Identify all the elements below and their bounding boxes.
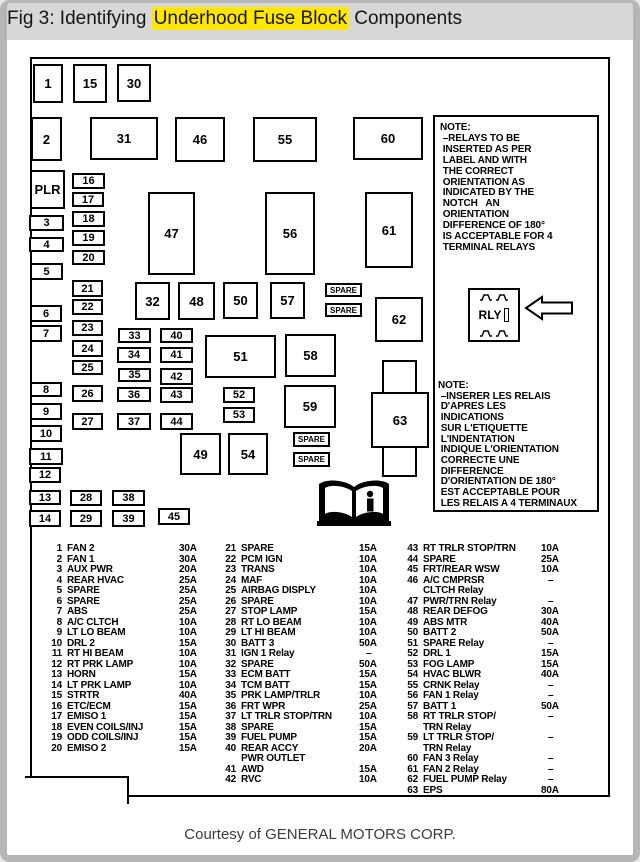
legend-row: 9LT LO BEAM10A — [48, 628, 216, 639]
relay-notch-icon — [496, 293, 508, 301]
fuse-box-16: 16 — [72, 173, 105, 189]
legend-fuse-name: HVAC BLWR — [423, 670, 541, 681]
legend-fuse-name: REAR ACCY PWR OUTLET — [241, 744, 359, 765]
legend-fuse-amp: 20A — [359, 744, 377, 755]
legend-fuse-amp: 10A — [179, 628, 197, 639]
legend-fuse-number: 39 — [222, 733, 236, 744]
legend-fuse-number: 46 — [404, 576, 418, 587]
legend-fuse-amp: 15A — [541, 649, 559, 660]
legend-fuse-name: RT HI BEAM — [67, 649, 179, 660]
legend-fuse-amp: 40A — [541, 670, 559, 681]
fuse-box-38: 38 — [112, 490, 145, 506]
fuse-box-61: 61 — [365, 192, 413, 268]
fuse-block-diagram: 11530231465560PLR16171819203454756612122… — [0, 0, 640, 862]
legend-fuse-name: RVC — [241, 775, 359, 786]
fuse-box-17: 17 — [72, 192, 104, 207]
legend-fuse-number: 45 — [404, 565, 418, 576]
legend-fuse-name: STRTR — [67, 691, 179, 702]
relay-notch-icons-bottom — [480, 329, 508, 337]
legend-fuse-name: EPS — [423, 786, 541, 797]
legend-fuse-number: 56 — [404, 691, 418, 702]
legend-fuse-name: LT HI BEAM — [241, 628, 359, 639]
legend-fuse-amp: 25A — [179, 586, 197, 597]
legend-row: 43RT TRLR STOP/TRN10A — [404, 544, 586, 555]
legend-fuse-amp: 80A — [541, 786, 559, 797]
legend-fuse-name: FAN 3 Relay — [423, 754, 541, 765]
legend-fuse-name: A/C CMPRSR CLTCH Relay — [423, 576, 541, 597]
fuse-box-27: 27 — [72, 413, 103, 430]
fuse-box-50: 50 — [223, 282, 258, 319]
fuse-box-1: 1 — [33, 64, 63, 103]
fuse-box-28: 28 — [70, 490, 102, 506]
legend-fuse-amp: – — [359, 649, 371, 660]
legend-fuse-amp: 10A — [359, 586, 377, 597]
fuse-box-12: 12 — [29, 467, 61, 483]
legend-fuse-amp: 15A — [359, 670, 377, 681]
legend-fuse-name: EMISO 1 — [67, 712, 179, 723]
relay-label-row: RLY — [479, 308, 510, 322]
fuse-box-14: 14 — [29, 510, 61, 527]
legend-fuse-number: 50 — [404, 628, 418, 639]
legend-row: 35PRK LAMP/TRLR10A — [222, 691, 400, 702]
legend-fuse-number: 20 — [48, 744, 62, 755]
legend-fuse-name: STOP LAMP — [241, 607, 359, 618]
legend-fuse-amp: 15A — [179, 733, 197, 744]
legend-fuse-amp: 15A — [359, 544, 377, 555]
fuse-box-51: 51 — [205, 335, 276, 378]
legend-fuse-name: RT TRLR STOP/ TRN Relay — [423, 712, 541, 733]
legend-fuse-number: 60 — [404, 754, 418, 765]
fuse-box-29: 29 — [70, 510, 102, 527]
legend-row: 45FRT/REAR WSW10A — [404, 565, 586, 576]
legend-row: 11RT HI BEAM10A — [48, 649, 216, 660]
legend-fuse-number: 54 — [404, 670, 418, 681]
legend-fuse-name: LT TRLR STOP/ TRN Relay — [423, 733, 541, 754]
relay-notch-icon — [480, 329, 492, 337]
legend-fuse-amp: 30A — [179, 544, 197, 555]
fuse-box-3: 3 — [29, 215, 64, 231]
legend-row: 48REAR DEFOG30A — [404, 607, 586, 618]
legend-fuse-name: ECM BATT — [241, 670, 359, 681]
fuse-box-63: 63 — [371, 392, 429, 448]
legend-fuse-amp: 10A — [359, 712, 377, 723]
fuse-box-30: 30 — [117, 64, 151, 102]
legend-row: 19ODD COILS/INJ15A — [48, 733, 216, 744]
legend-fuse-name: ODD COILS/INJ — [67, 733, 179, 744]
fuse-box-26: 26 — [72, 385, 103, 402]
legend-column-1: 1FAN 230A2FAN 130A3AUX PWR20A4REAR HVAC2… — [48, 544, 216, 754]
fuse-box-60: 60 — [353, 117, 423, 160]
fuse-box-45: 45 — [158, 508, 190, 525]
legend-row: 13HORN15A — [48, 670, 216, 681]
fuse-box-25: 25 — [72, 360, 103, 375]
legend-row: 17EMISO 115A — [48, 712, 216, 723]
fuse-box-5: 5 — [30, 263, 63, 280]
fuse-box-24: 24 — [72, 340, 103, 357]
legend-fuse-amp: – — [541, 754, 553, 765]
fuse-box-54: 54 — [228, 433, 268, 475]
relay-note-english: NOTE: –RELAYS TO BE INSERTED AS PER LABE… — [440, 123, 595, 254]
fuse-box-10: 10 — [30, 425, 62, 442]
fuse-box-39: 39 — [112, 510, 145, 527]
legend-fuse-number: 23 — [222, 565, 236, 576]
legend-row: 60FAN 3 Relay– — [404, 754, 586, 765]
legend-row: 20EMISO 215A — [48, 744, 216, 755]
legend-fuse-number: 42 — [222, 775, 236, 786]
legend-fuse-number: 43 — [404, 544, 418, 555]
legend-row: 31IGN 1 Relay– — [222, 649, 400, 660]
fuse-box-34: 34 — [117, 347, 151, 363]
legend-fuse-name: DRL 1 — [423, 649, 541, 660]
legend-fuse-name: FUEL PUMP — [241, 733, 359, 744]
legend-fuse-amp: 50A — [541, 628, 559, 639]
fuse-box-37: 37 — [117, 413, 151, 430]
spare-fuse-box: SPARE — [293, 432, 330, 447]
fuse-box-43: 43 — [160, 387, 193, 403]
legend-fuse-number: 27 — [222, 607, 236, 618]
legend-row: 23TRANS10A — [222, 565, 400, 576]
legend-fuse-name: BATT 2 — [423, 628, 541, 639]
legend-fuse-number: 59 — [404, 733, 418, 744]
legend-row: 21SPARE15A — [222, 544, 400, 555]
legend-fuse-name: IGN 1 Relay — [241, 649, 359, 660]
legend-fuse-number: 48 — [404, 607, 418, 618]
relay-orientation-symbol: RLY — [468, 288, 520, 342]
relay-slot-icon — [504, 308, 509, 322]
legend-fuse-amp: 25A — [179, 607, 197, 618]
legend-fuse-name: RT TRLR STOP/TRN — [423, 544, 541, 555]
legend-fuse-number: 62 — [404, 775, 418, 786]
legend-row: 33ECM BATT15A — [222, 670, 400, 681]
legend-row: 39FUEL PUMP15A — [222, 733, 400, 744]
legend-fuse-number: 11 — [48, 649, 62, 660]
legend-fuse-number: 21 — [222, 544, 236, 555]
legend-fuse-amp: 15A — [179, 712, 197, 723]
fuse-box-31: 31 — [90, 117, 158, 160]
legend-fuse-number: 19 — [48, 733, 62, 744]
legend-fuse-amp: – — [541, 733, 553, 744]
legend-fuse-number: 31 — [222, 649, 236, 660]
legend-row: 3AUX PWR20A — [48, 565, 216, 576]
legend-fuse-name: ABS — [67, 607, 179, 618]
legend-fuse-number: 5 — [48, 586, 62, 597]
legend-fuse-name: FRT/REAR WSW — [423, 565, 541, 576]
legend-fuse-number: 17 — [48, 712, 62, 723]
legend-row: 27STOP LAMP15A — [222, 607, 400, 618]
fuse-box-40: 40 — [160, 328, 193, 343]
relay-label: RLY — [479, 308, 502, 322]
fuse-box-13: 13 — [29, 490, 61, 505]
fuse-box-6: 6 — [30, 305, 62, 322]
legend-fuse-name: PRK LAMP/TRLR — [241, 691, 359, 702]
legend-fuse-amp: 10A — [359, 775, 377, 786]
legend-fuse-name: SPARE — [67, 586, 179, 597]
legend-fuse-amp: – — [541, 691, 553, 702]
fuse-box-53: 53 — [223, 407, 255, 423]
left-arrow-icon — [524, 294, 574, 322]
legend-fuse-name: FAN 1 Relay — [423, 691, 541, 702]
legend-fuse-amp: 15A — [359, 607, 377, 618]
fuse-box-62: 62 — [375, 297, 423, 342]
legend-row: 54HVAC BLWR40A — [404, 670, 586, 681]
legend-fuse-name: AIRBAG DISPLY — [241, 586, 359, 597]
fuse-box-21: 21 — [72, 280, 103, 297]
fuse-box-18: 18 — [72, 211, 105, 227]
legend-column-3: 43RT TRLR STOP/TRN10A44SPARE25A45FRT/REA… — [404, 544, 586, 796]
legend-fuse-name: FUEL PUMP Relay — [423, 775, 541, 786]
fuse-box-15: 15 — [73, 64, 107, 103]
fuse-box-11: 11 — [29, 448, 63, 465]
legend-row: 15STRTR40A — [48, 691, 216, 702]
owners-manual-book-icon — [313, 477, 395, 529]
fuse-box-2: 2 — [31, 117, 62, 161]
legend-fuse-amp: 15A — [179, 744, 197, 755]
legend-fuse-amp: 10A — [359, 691, 377, 702]
legend-row: 40REAR ACCY PWR OUTLET20A — [222, 744, 400, 765]
fuse-box-7: 7 — [30, 325, 62, 342]
legend-fuse-name: REAR DEFOG — [423, 607, 541, 618]
fuse-box-35: 35 — [118, 368, 151, 382]
legend-fuse-number: 63 — [404, 786, 418, 797]
legend-fuse-name: FAN 2 — [67, 544, 179, 555]
legend-fuse-amp: 10A — [359, 628, 377, 639]
fuse-box-23: 23 — [72, 320, 103, 336]
fuse-box-44: 44 — [160, 413, 193, 430]
legend-fuse-amp: 15A — [179, 670, 197, 681]
fuse-box-8: 8 — [30, 382, 62, 397]
relay-notch-icon — [480, 293, 492, 301]
fuse-box-33: 33 — [118, 328, 151, 343]
legend-fuse-number: 7 — [48, 607, 62, 618]
spare-fuse-box: SPARE — [325, 283, 362, 297]
fuse-box-9: 9 — [30, 403, 62, 420]
legend-fuse-number: 33 — [222, 670, 236, 681]
fuse-box-58: 58 — [285, 334, 336, 377]
legend-row: 58RT TRLR STOP/ TRN Relay– — [404, 712, 586, 733]
legend-fuse-number: 29 — [222, 628, 236, 639]
fuse-box-22: 22 — [72, 299, 103, 315]
legend-fuse-amp: 30A — [541, 607, 559, 618]
legend-fuse-name: SPARE — [241, 544, 359, 555]
relay-notch-icon — [496, 329, 508, 337]
fuse-box-plr: PLR — [30, 170, 65, 209]
spare-fuse-box: SPARE — [325, 303, 362, 317]
fuse-box-57: 57 — [270, 282, 305, 319]
legend-row: 56FAN 1 Relay– — [404, 691, 586, 702]
fuse-box-19: 19 — [72, 230, 105, 246]
legend-fuse-amp: – — [541, 775, 553, 786]
legend-fuse-number: 52 — [404, 649, 418, 660]
legend-fuse-amp: 10A — [541, 565, 559, 576]
fuse-box-55: 55 — [253, 117, 317, 162]
legend-fuse-amp: 10A — [359, 565, 377, 576]
legend-fuse-amp: 15A — [359, 733, 377, 744]
relay-notch-icons-top — [480, 293, 508, 301]
fuse-box-49: 49 — [180, 433, 221, 475]
legend-row: 63EPS80A — [404, 786, 586, 797]
fuse-box-46: 46 — [175, 117, 225, 162]
fuse-block-outline-notch — [25, 776, 129, 804]
fuse-box-36: 36 — [117, 387, 151, 402]
legend-row: 42RVC10A — [222, 775, 400, 786]
legend-fuse-number: 15 — [48, 691, 62, 702]
legend-fuse-amp: 10A — [541, 544, 559, 555]
legend-row: 25AIRBAG DISPLY10A — [222, 586, 400, 597]
legend-fuse-name: HORN — [67, 670, 179, 681]
legend-row: 59LT TRLR STOP/ TRN Relay– — [404, 733, 586, 754]
legend-fuse-number: 13 — [48, 670, 62, 681]
fuse-box-59: 59 — [284, 385, 336, 428]
figure-page: Fig 3: Identifying Underhood Fuse Block … — [0, 0, 640, 862]
legend-fuse-number: 1 — [48, 544, 62, 555]
legend-fuse-amp: – — [541, 576, 553, 587]
spare-fuse-box: SPARE — [293, 452, 330, 467]
fuse-box-56: 56 — [265, 192, 315, 275]
legend-row: 29LT HI BEAM10A — [222, 628, 400, 639]
legend-fuse-name: LT LO BEAM — [67, 628, 179, 639]
legend-row: 62FUEL PUMP Relay– — [404, 775, 586, 786]
fuse-box-47: 47 — [148, 192, 195, 275]
legend-row: 5SPARE25A — [48, 586, 216, 597]
legend-fuse-amp: 40A — [179, 691, 197, 702]
legend-row: 50BATT 250A — [404, 628, 586, 639]
legend-fuse-number: 9 — [48, 628, 62, 639]
legend-fuse-number: 25 — [222, 586, 236, 597]
legend-fuse-name: LT TRLR STOP/TRN — [241, 712, 359, 723]
legend-fuse-amp: 20A — [179, 565, 197, 576]
legend-row: 37LT TRLR STOP/TRN10A — [222, 712, 400, 723]
legend-row: 7ABS25A — [48, 607, 216, 618]
fuse-box-52: 52 — [223, 387, 255, 403]
legend-fuse-number: 40 — [222, 744, 236, 755]
legend-fuse-name: EMISO 2 — [67, 744, 179, 755]
fuse-box-4: 4 — [29, 237, 64, 252]
fuse-box-42: 42 — [160, 368, 193, 385]
legend-fuse-amp: 10A — [179, 649, 197, 660]
relay-note-french: NOTE: –INSERER LES RELAIS D'APRES LES IN… — [438, 381, 598, 509]
legend-fuse-name: TRANS — [241, 565, 359, 576]
legend-fuse-name: AUX PWR — [67, 565, 179, 576]
fuse-box-41: 41 — [160, 347, 193, 363]
legend-fuse-number: 35 — [222, 691, 236, 702]
legend-fuse-number: 58 — [404, 712, 418, 723]
legend-row: 1FAN 230A — [48, 544, 216, 555]
legend-fuse-amp: – — [541, 712, 553, 723]
fuse-box-48: 48 — [178, 282, 215, 320]
legend-fuse-number: 3 — [48, 565, 62, 576]
fuse-box-32: 32 — [135, 282, 170, 320]
legend-column-2: 21SPARE15A22PCM IGN10A23TRANS10A24MAF10A… — [222, 544, 400, 786]
fuse-box-20: 20 — [72, 250, 105, 265]
legend-row: 46A/C CMPRSR CLTCH Relay– — [404, 576, 586, 597]
legend-row: 52DRL 115A — [404, 649, 586, 660]
legend-fuse-number: 37 — [222, 712, 236, 723]
